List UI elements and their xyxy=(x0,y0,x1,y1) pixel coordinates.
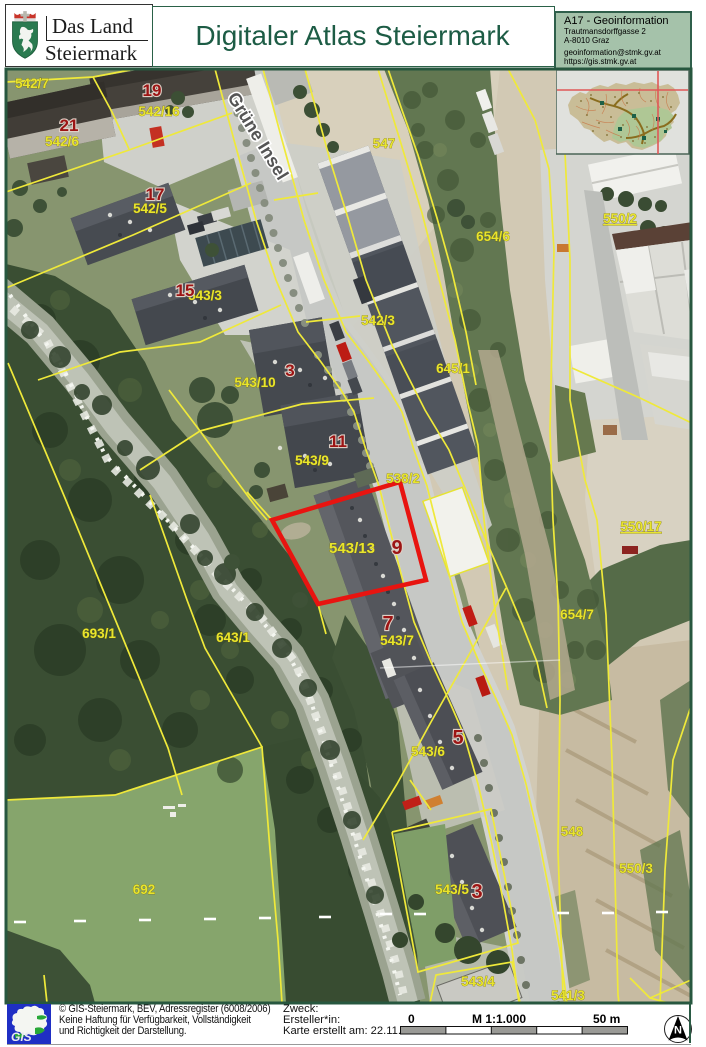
svg-text:21: 21 xyxy=(60,116,79,135)
svg-text:543/7: 543/7 xyxy=(380,633,414,648)
svg-text:645/1: 645/1 xyxy=(436,361,470,376)
svg-text:542/3: 542/3 xyxy=(361,313,395,328)
svg-text:547: 547 xyxy=(373,136,396,151)
svg-text:3: 3 xyxy=(471,881,482,903)
svg-text:692: 692 xyxy=(133,882,156,897)
svg-text:654/7: 654/7 xyxy=(560,607,594,622)
svg-text:15: 15 xyxy=(176,281,195,300)
svg-text:542/7: 542/7 xyxy=(15,76,49,91)
svg-text:7: 7 xyxy=(382,613,393,635)
svg-text:543/13: 543/13 xyxy=(329,540,375,557)
svg-text:GIS: GIS xyxy=(11,1030,32,1044)
svg-text:N: N xyxy=(674,1025,682,1037)
svg-text:542/6: 542/6 xyxy=(45,134,79,149)
svg-text:550/17: 550/17 xyxy=(620,519,661,534)
svg-text:538/2: 538/2 xyxy=(386,471,420,486)
svg-text:543/5: 543/5 xyxy=(435,882,469,897)
svg-text:541/3: 541/3 xyxy=(551,988,585,1003)
svg-text:550/2: 550/2 xyxy=(603,211,637,226)
svg-text:542/16: 542/16 xyxy=(138,104,180,119)
svg-text:17: 17 xyxy=(146,185,165,204)
svg-text:654/6: 654/6 xyxy=(476,229,510,244)
svg-text:543/9: 543/9 xyxy=(295,453,329,468)
svg-text:543/4: 543/4 xyxy=(461,974,495,989)
svg-text:5: 5 xyxy=(452,727,463,749)
svg-text:548: 548 xyxy=(561,824,584,839)
svg-text:3: 3 xyxy=(285,361,294,380)
svg-text:9: 9 xyxy=(391,537,402,559)
svg-text:543/6: 543/6 xyxy=(411,744,445,759)
svg-text:11: 11 xyxy=(329,432,347,451)
svg-text:550/3: 550/3 xyxy=(619,861,653,876)
svg-text:693/1: 693/1 xyxy=(82,626,116,641)
svg-text:543/10: 543/10 xyxy=(234,375,275,390)
svg-text:643/1: 643/1 xyxy=(216,630,250,645)
svg-text:19: 19 xyxy=(143,81,162,100)
